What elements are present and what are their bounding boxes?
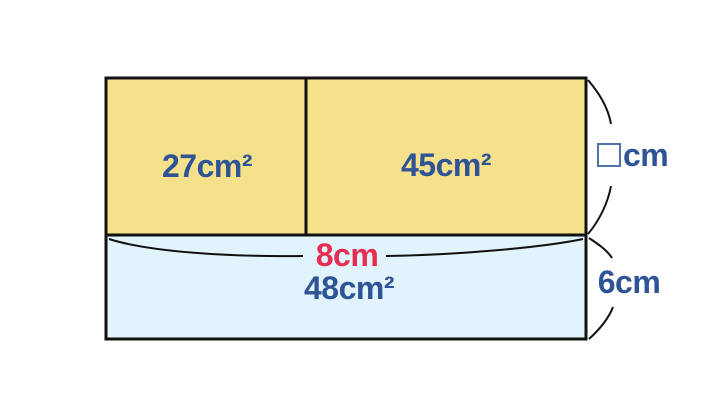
- diagram-canvas: 27cm² 45cm² 8cm 48cm² cm 6cm: [0, 0, 720, 405]
- height-label-bottom: 6cm: [598, 266, 661, 298]
- brace-bottom-height-lower-arc: [589, 307, 613, 339]
- brace-bottom-height-upper-arc: [589, 238, 612, 258]
- diagram-shapes: [0, 0, 720, 405]
- area-label-top-left: 27cm²: [162, 150, 252, 182]
- unknown-box-icon: [597, 143, 621, 167]
- height-label-top-unit: cm: [623, 139, 668, 171]
- brace-top-height-upper-arc: [588, 80, 611, 124]
- brace-top-height-lower-arc: [588, 186, 611, 234]
- height-label-top: cm: [597, 139, 668, 171]
- area-label-top-right: 45cm²: [401, 149, 491, 181]
- width-label-bottom: 8cm: [316, 239, 379, 271]
- area-label-bottom: 48cm²: [304, 272, 394, 304]
